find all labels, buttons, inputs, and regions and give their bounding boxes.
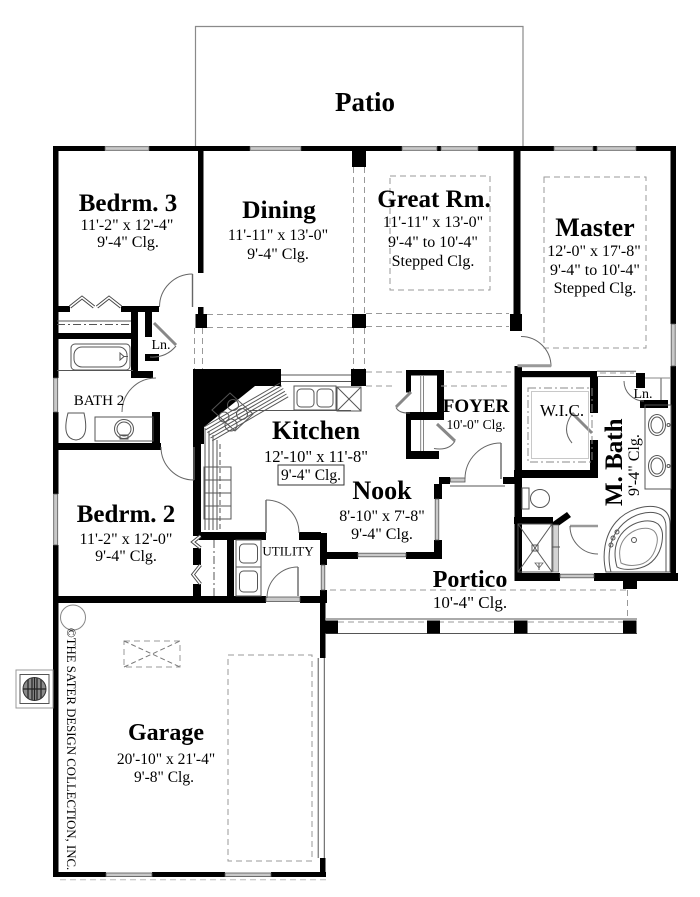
svg-text:9'-4" Clg.: 9'-4" Clg. (95, 548, 157, 565)
svg-text:M. Bath: M. Bath (601, 418, 628, 506)
svg-text:Ln.: Ln. (151, 338, 170, 353)
svg-text:9'-8" Clg.: 9'-8" Clg. (134, 769, 194, 786)
svg-text:Garage: Garage (128, 720, 204, 746)
svg-text:11'-2" x 12'-4": 11'-2" x 12'-4" (81, 217, 174, 234)
svg-text:Portico: Portico (433, 567, 508, 593)
svg-text:W.I.C.: W.I.C. (540, 401, 584, 420)
svg-text:BATH 2: BATH 2 (74, 393, 124, 409)
svg-text:UTILITY: UTILITY (262, 544, 314, 559)
svg-text:Great Rm.: Great Rm. (377, 186, 490, 213)
svg-text:12'-10" x 11'-8": 12'-10" x 11'-8" (264, 447, 368, 466)
svg-text:©THE SATER DESIGN COLLECTION,: ©THE SATER DESIGN COLLECTION, INC. (64, 628, 78, 870)
svg-text:9'-4" Clg.: 9'-4" Clg. (97, 234, 159, 251)
svg-text:Bedrm. 2: Bedrm. 2 (77, 501, 176, 528)
svg-text:9'-4" to 10'-4": 9'-4" to 10'-4" (388, 234, 478, 251)
svg-text:9'-4" Clg.: 9'-4" Clg. (247, 246, 309, 263)
svg-text:11'-11" x 13'-0": 11'-11" x 13'-0" (228, 227, 328, 244)
svg-text:11'-2" x 12'-0": 11'-2" x 12'-0" (80, 531, 173, 548)
svg-text:10'-4" Clg.: 10'-4" Clg. (433, 593, 507, 612)
svg-text:Master: Master (555, 213, 634, 242)
svg-text:11'-11" x 13'-0": 11'-11" x 13'-0" (383, 214, 483, 231)
svg-text:9'-4" to 10'-4": 9'-4" to 10'-4" (550, 262, 640, 279)
svg-text:Stepped Clg.: Stepped Clg. (554, 280, 637, 297)
svg-text:Patio: Patio (335, 87, 395, 117)
svg-text:Dining: Dining (242, 195, 316, 224)
svg-text:8'-10" x 7'-8": 8'-10" x 7'-8" (339, 508, 424, 525)
svg-text:10'-0" Clg.: 10'-0" Clg. (447, 417, 506, 432)
svg-text:9'-4" Clg.: 9'-4" Clg. (626, 434, 643, 496)
svg-text:Stepped Clg.: Stepped Clg. (392, 253, 475, 270)
svg-text:Ln.: Ln. (633, 387, 652, 402)
svg-text:FOYER: FOYER (443, 396, 510, 417)
svg-text:20'-10" x 21'-4": 20'-10" x 21'-4" (117, 751, 215, 768)
svg-text:9'-4" Clg.: 9'-4" Clg. (281, 467, 341, 484)
svg-text:12'-0" x 17'-8": 12'-0" x 17'-8" (547, 243, 640, 260)
svg-text:9'-4" Clg.: 9'-4" Clg. (351, 526, 413, 543)
svg-text:Kitchen: Kitchen (272, 416, 361, 445)
svg-text:Bedrm. 3: Bedrm. 3 (79, 190, 178, 217)
svg-text:Nook: Nook (352, 476, 412, 505)
